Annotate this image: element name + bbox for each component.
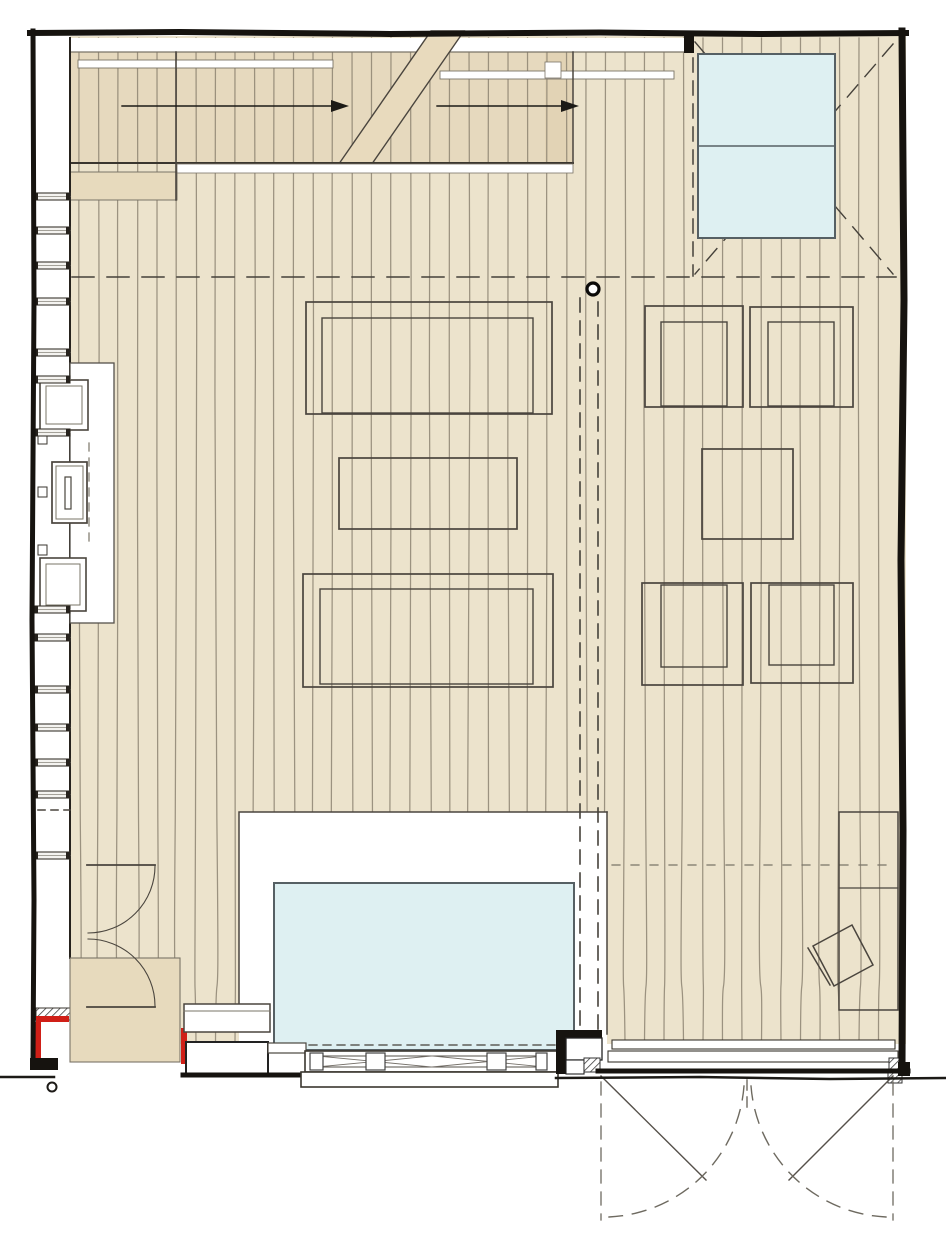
floor-plan-drawing	[0, 0, 946, 1243]
floor-plan-canvas	[0, 0, 946, 1243]
fireplace-alcove	[38, 363, 114, 623]
light-well	[239, 812, 607, 1050]
double-door-swing	[601, 1076, 893, 1220]
